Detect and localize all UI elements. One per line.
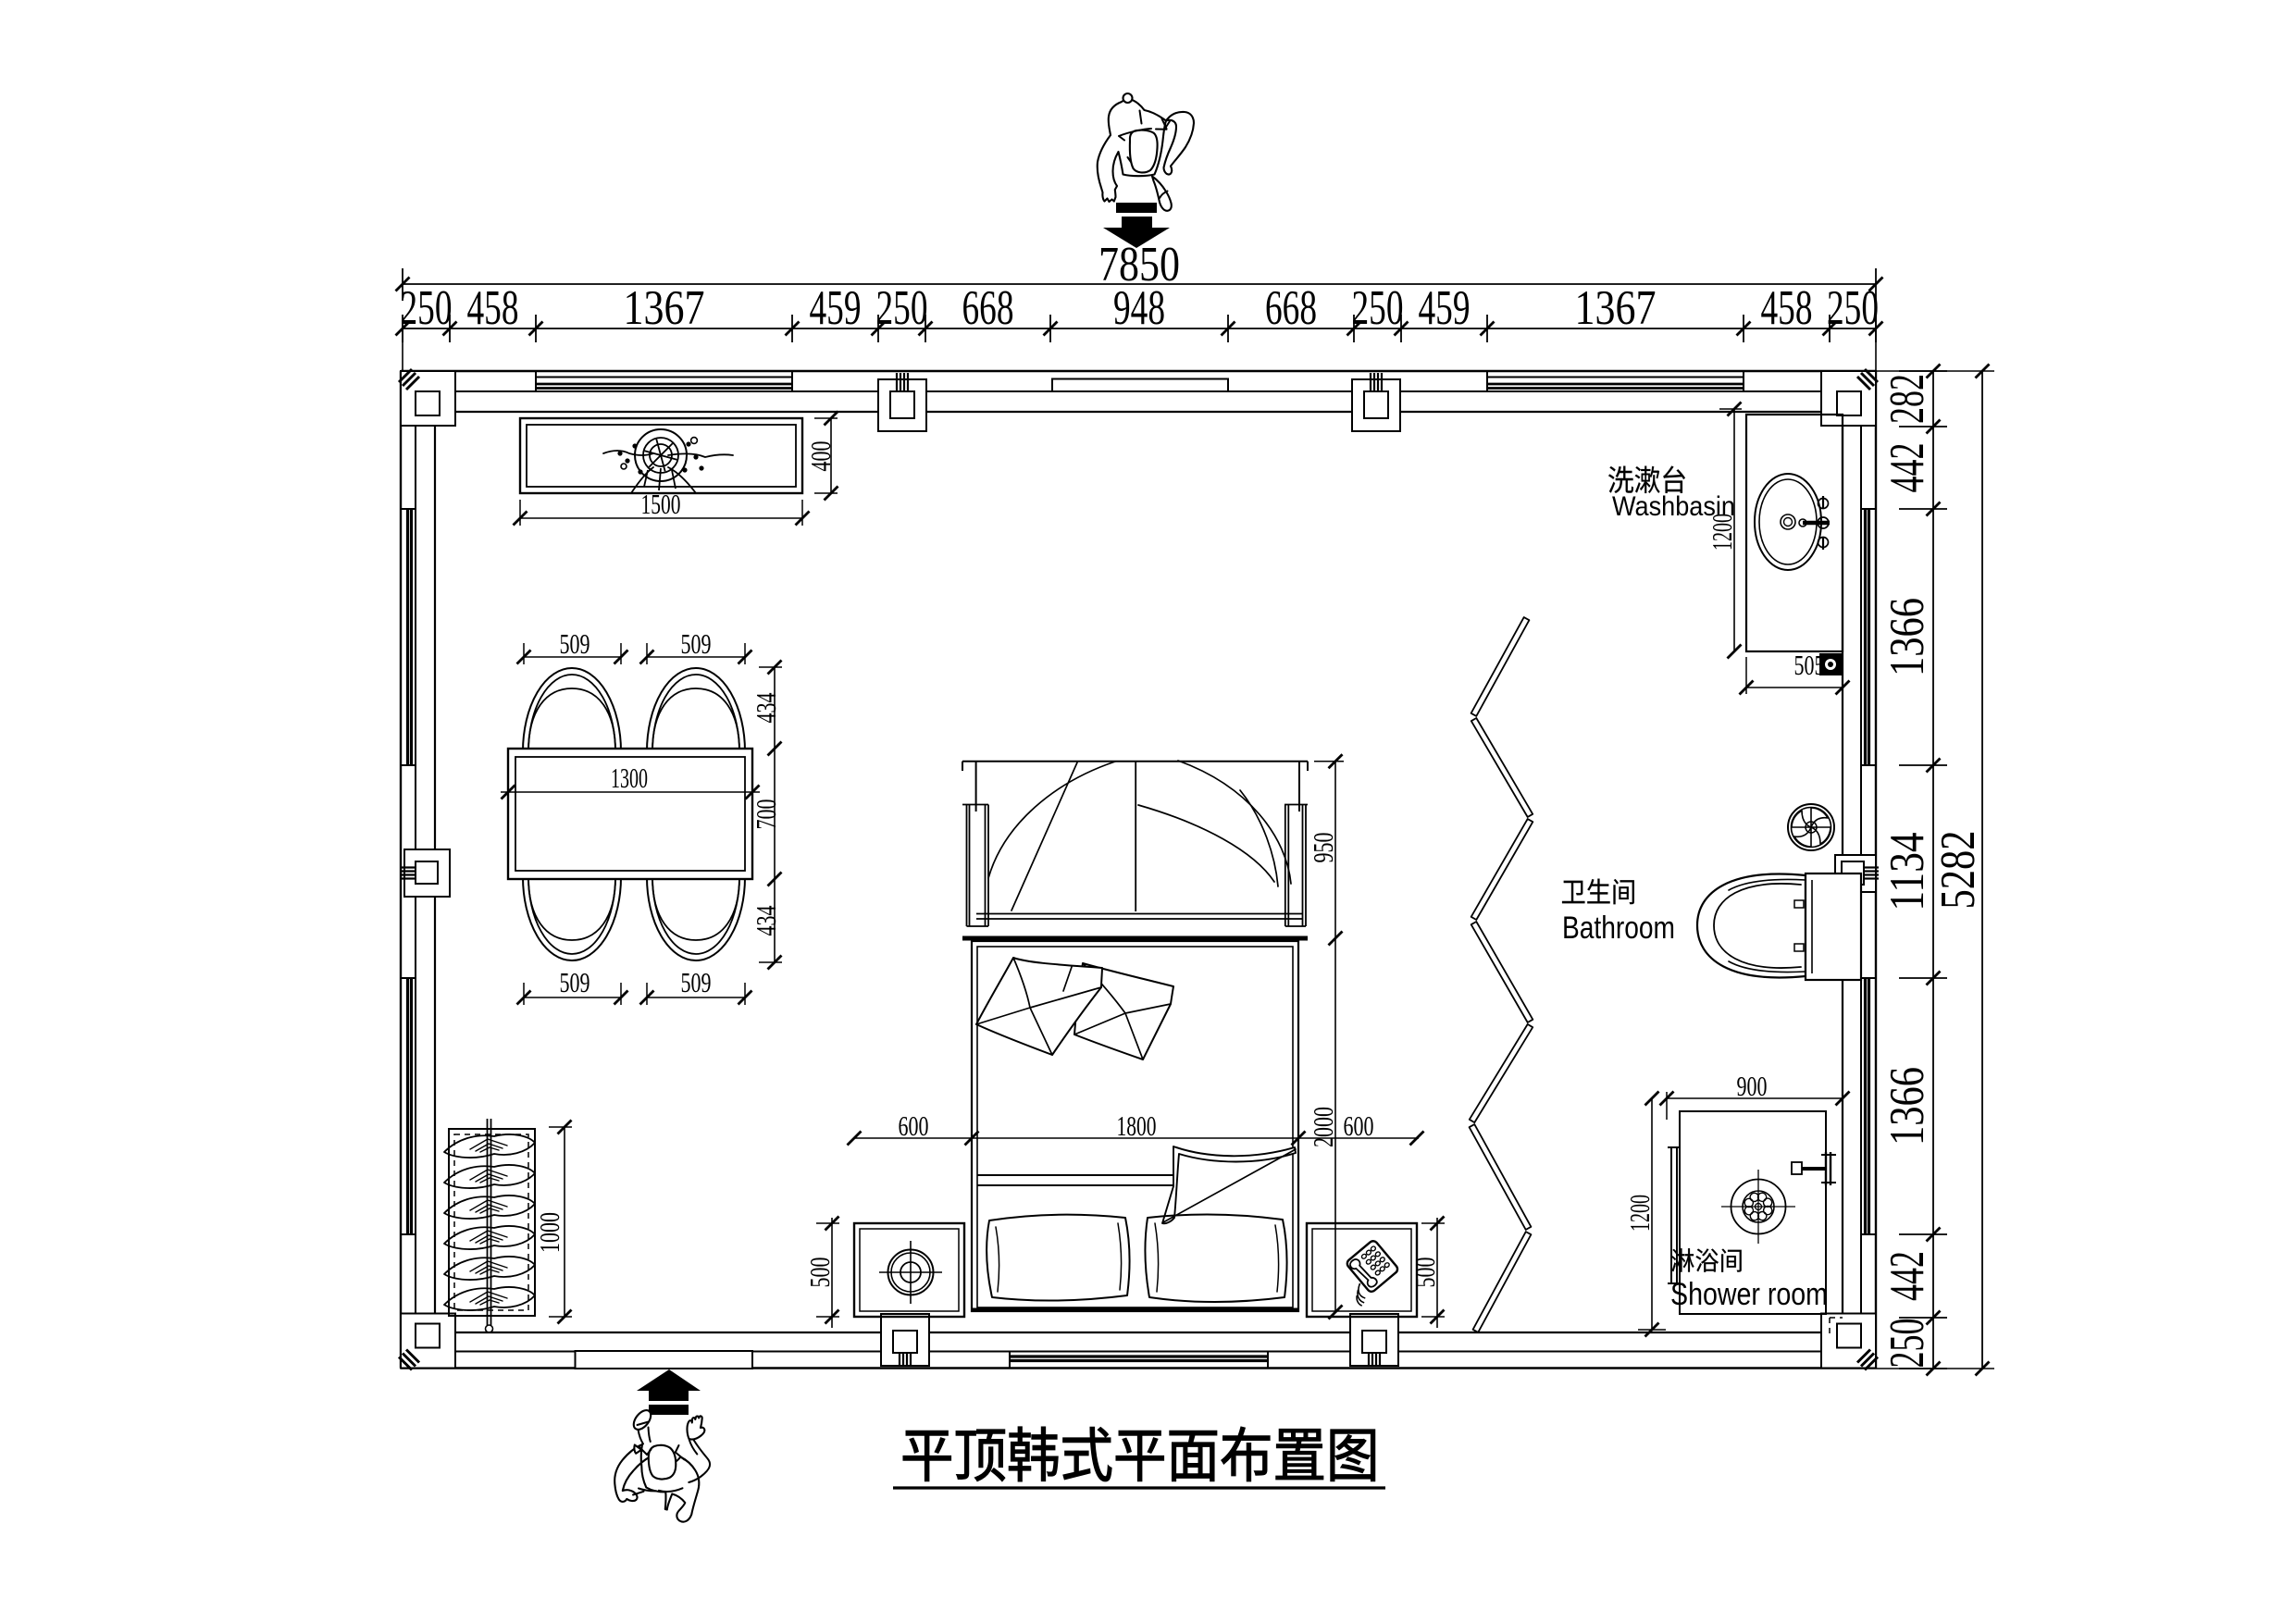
svg-text:509: 509 (681, 966, 712, 998)
svg-text:900: 900 (1737, 1070, 1768, 1102)
svg-text:Washbasin: Washbasin (1612, 491, 1735, 522)
svg-text:509: 509 (681, 627, 712, 660)
svg-text:282: 282 (1880, 374, 1934, 424)
svg-text:1367: 1367 (624, 281, 705, 335)
svg-text:459: 459 (1419, 281, 1471, 335)
svg-text:250: 250 (1352, 281, 1404, 335)
svg-text:250: 250 (1880, 1319, 1934, 1369)
svg-text:600: 600 (899, 1109, 929, 1142)
svg-text:250: 250 (1827, 281, 1879, 335)
svg-text:505: 505 (1794, 649, 1825, 681)
svg-text:509: 509 (560, 627, 590, 660)
svg-text:434: 434 (750, 692, 782, 723)
svg-text:442: 442 (1880, 443, 1934, 493)
svg-text:700: 700 (750, 799, 782, 830)
svg-text:509: 509 (560, 966, 590, 998)
svg-text:1366: 1366 (1880, 598, 1934, 676)
svg-text:250: 250 (401, 281, 453, 335)
svg-text:668: 668 (962, 281, 1014, 335)
svg-text:1134: 1134 (1880, 833, 1934, 911)
svg-text:668: 668 (1265, 281, 1317, 335)
svg-text:458: 458 (467, 281, 519, 335)
svg-text:434: 434 (750, 905, 782, 935)
svg-text:1800: 1800 (1117, 1109, 1157, 1142)
svg-text:Bathroom: Bathroom (1562, 911, 1675, 946)
svg-text:1500: 1500 (641, 488, 681, 520)
svg-text:5282: 5282 (1931, 831, 1985, 910)
svg-text:500: 500 (1409, 1258, 1441, 1288)
svg-text:948: 948 (1113, 281, 1165, 335)
svg-text:600: 600 (1344, 1109, 1374, 1142)
svg-text:442: 442 (1880, 1251, 1934, 1301)
svg-text:1367: 1367 (1575, 281, 1657, 335)
svg-text:458: 458 (1761, 281, 1813, 335)
svg-text:950: 950 (1307, 833, 1339, 863)
svg-text:500: 500 (803, 1258, 836, 1288)
svg-text:400: 400 (804, 441, 837, 472)
svg-text:1200: 1200 (1623, 1195, 1656, 1232)
svg-text:Shower room: Shower room (1670, 1277, 1828, 1312)
svg-text:1000: 1000 (533, 1212, 565, 1253)
svg-text:459: 459 (810, 281, 862, 335)
svg-text:250: 250 (876, 281, 928, 335)
svg-text:1366: 1366 (1880, 1067, 1934, 1146)
svg-text:2000: 2000 (1307, 1107, 1339, 1147)
svg-text:1300: 1300 (611, 762, 648, 794)
